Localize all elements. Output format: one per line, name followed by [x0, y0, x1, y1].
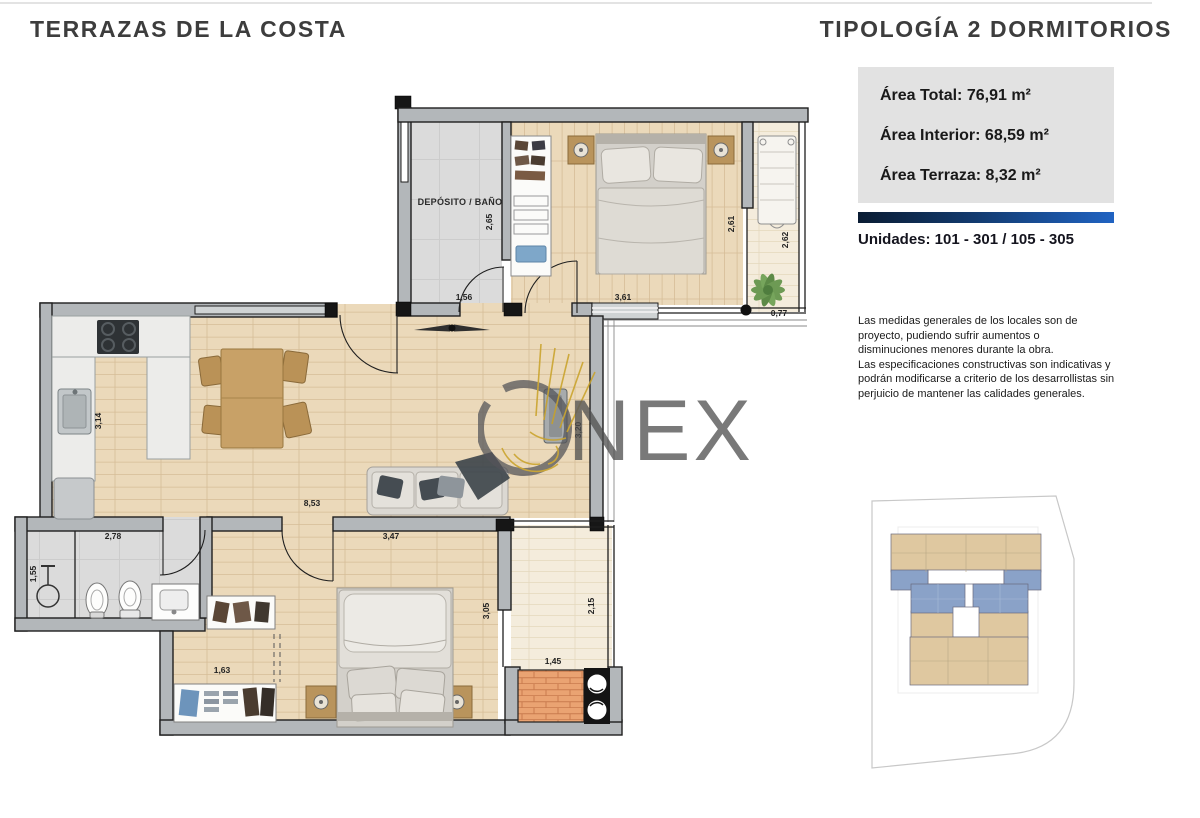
- dimension-label: 8,53: [304, 498, 321, 508]
- dimension-label: 1,45: [545, 656, 562, 666]
- room-labels: DEPÓSITO / BAÑO: [418, 196, 503, 207]
- bidet-icon: [86, 583, 108, 618]
- accent-gradient-bar: [858, 212, 1114, 223]
- legal-disclaimer: Las medidas generales de los locales son…: [858, 314, 1170, 401]
- toilet-icon: [119, 581, 141, 618]
- dimension-label: 2,78: [105, 531, 122, 541]
- dimension-label: 2,65: [484, 213, 494, 230]
- dimension-label: 2,62: [780, 231, 790, 248]
- terrace-2-parrillero: [518, 668, 610, 724]
- site-key-plan: [860, 487, 1112, 807]
- building-footprint: [891, 534, 1041, 685]
- room-deposito-bano: [411, 122, 502, 305]
- grill-icon: [584, 668, 610, 724]
- area-total: Área Total: 76,91 m²: [880, 87, 1114, 105]
- onex-wordmark: NEX: [568, 383, 754, 479]
- dimension-label: 1,55: [28, 565, 38, 582]
- bedroom-1-furniture: [511, 134, 734, 276]
- plan-sheet: TERRAZAS DE LA COSTA TIPOLOGÍA 2 DORMITO…: [0, 0, 1200, 818]
- dimension-label: 3,61: [615, 292, 632, 302]
- wardrobe-2: [174, 684, 276, 722]
- area-terraza: Área Terraza: 8,32 m²: [880, 167, 1114, 185]
- typology-title: TIPOLOGÍA 2 DORMITORIOS: [820, 16, 1172, 43]
- dimension-label: 1,56: [456, 292, 473, 302]
- project-title: TERRAZAS DE LA COSTA: [30, 16, 347, 43]
- dimension-label: 1,63: [214, 665, 231, 675]
- fridge-icon: [54, 478, 94, 519]
- units-line: Unidades: 101 - 301 / 105 - 305: [858, 231, 1114, 248]
- deposito-bano-label: DEPÓSITO / BAÑO: [418, 196, 503, 207]
- vanity-sink-icon: [152, 584, 199, 620]
- wardrobe-1: [207, 596, 275, 629]
- bed-1: [596, 134, 706, 274]
- top-divider: [0, 2, 1152, 4]
- dimension-label: 3,14: [93, 412, 103, 429]
- area-interior: Área Interior: 68,59 m²: [880, 127, 1114, 145]
- info-panel: Área Total: 76,91 m² Área Interior: 68,5…: [858, 67, 1114, 248]
- cooktop-icon: [97, 320, 139, 354]
- dimension-label: 3,47: [383, 531, 400, 541]
- dimension-label: 2,15: [586, 597, 596, 614]
- dimension-label: 3,05: [481, 602, 491, 619]
- area-summary-box: Área Total: 76,91 m² Área Interior: 68,5…: [858, 67, 1114, 203]
- bed-2: [337, 588, 453, 727]
- lounge-chair: [758, 136, 796, 228]
- dimension-label: 2,61: [726, 215, 736, 232]
- dimension-label: 0,77: [771, 308, 788, 318]
- kitchen-sink-icon: [58, 389, 91, 434]
- onex-watermark: NEX: [478, 336, 760, 482]
